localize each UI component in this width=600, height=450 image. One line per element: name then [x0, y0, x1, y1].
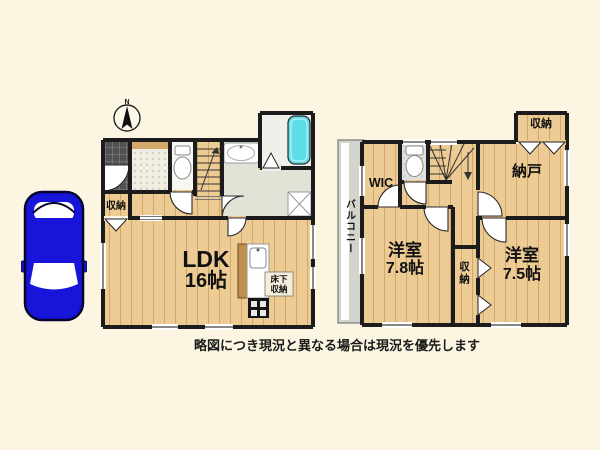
underfloor-storage-label: 床下収納	[267, 274, 291, 294]
bedroom-left-label: 洋室	[360, 242, 450, 260]
first-floor-plan	[100, 113, 316, 330]
top-closet-label: 収納	[516, 119, 566, 131]
entrance-closet-label: 収納	[101, 202, 131, 213]
second-floor-plan	[338, 113, 570, 328]
toilet-icon-1f	[174, 146, 191, 179]
washer-pan-icon	[288, 192, 311, 216]
bedroom-right-label: 洋室	[478, 247, 566, 265]
wic-label: WIC	[359, 177, 403, 190]
screenshot-canvas: N 収納 LDK 16帖 床下収納 WIC 収納 納戸 洋室 7.8帖 収納 洋…	[0, 0, 600, 450]
storage-room-label: 納戸	[492, 164, 562, 180]
toilet-icon-2f	[406, 146, 423, 177]
bedroom-right-size-label: 7.5帖	[478, 267, 566, 284]
compass-north-label: N	[110, 99, 144, 106]
floor-plan-graphic	[0, 0, 600, 450]
ldk-label: LDK	[150, 247, 262, 271]
bathtub-icon	[288, 116, 310, 164]
footer-note: 略図につき現況と異なる場合は現況を優先します	[117, 335, 557, 354]
balcony-label: バルコニー	[343, 199, 354, 254]
car-icon	[21, 187, 87, 325]
middle-closet-label: 収納	[458, 261, 469, 286]
ldk-size-label: 16帖	[150, 271, 262, 292]
stove-icon	[248, 298, 269, 318]
bedroom-left-size-label: 7.8帖	[360, 261, 450, 278]
sink-icon	[224, 143, 259, 163]
